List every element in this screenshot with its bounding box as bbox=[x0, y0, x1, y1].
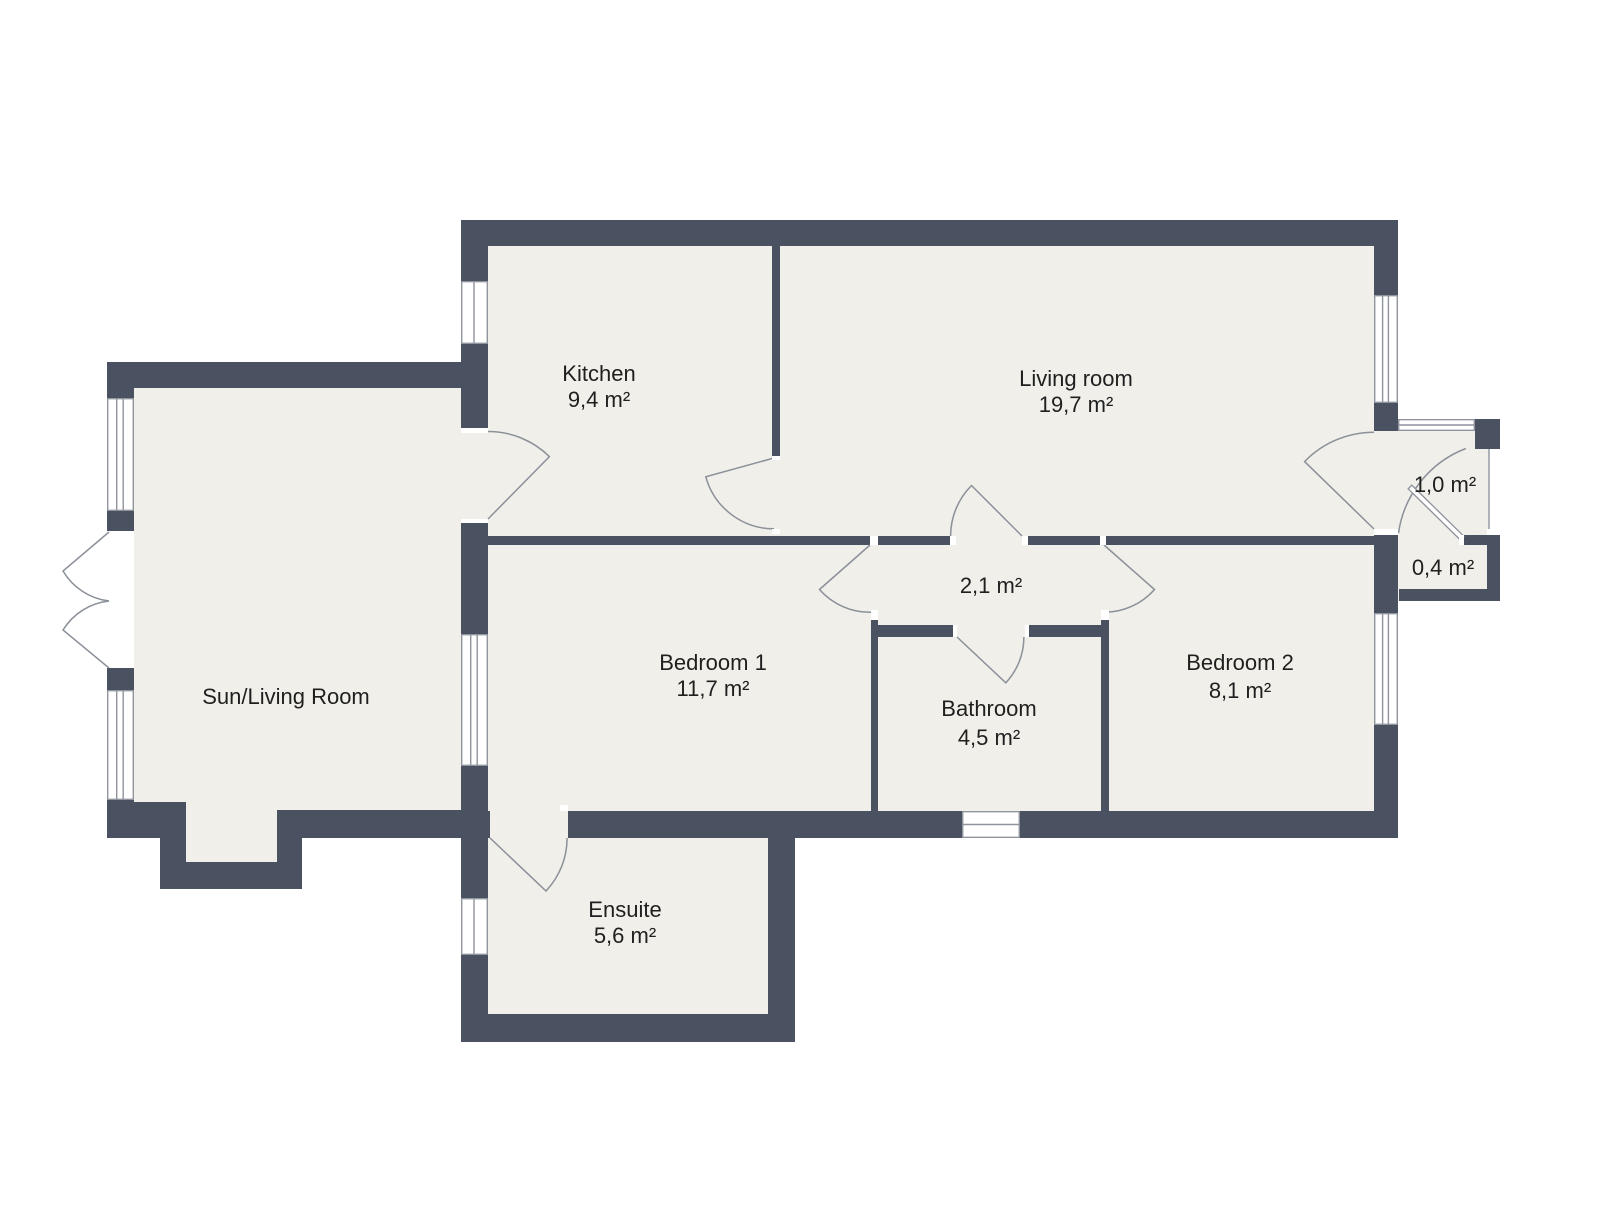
svg-text:0,4 m²: 0,4 m² bbox=[1412, 555, 1474, 580]
svg-text:19,7 m²: 19,7 m² bbox=[1039, 392, 1114, 417]
svg-text:2,1 m²: 2,1 m² bbox=[960, 573, 1022, 598]
svg-text:Ensuite: Ensuite bbox=[588, 897, 661, 922]
svg-text:5,6 m²: 5,6 m² bbox=[594, 923, 656, 948]
svg-text:9,4 m²: 9,4 m² bbox=[568, 387, 630, 412]
svg-text:Sun/Living Room: Sun/Living Room bbox=[202, 684, 370, 709]
svg-text:4,5 m²: 4,5 m² bbox=[958, 725, 1020, 750]
svg-text:1,0 m²: 1,0 m² bbox=[1414, 472, 1476, 497]
svg-text:Bathroom: Bathroom bbox=[941, 696, 1036, 721]
svg-text:Bedroom 2: Bedroom 2 bbox=[1186, 650, 1294, 675]
svg-text:8,1 m²: 8,1 m² bbox=[1209, 678, 1271, 703]
svg-text:Living room: Living room bbox=[1019, 366, 1133, 391]
svg-text:Bedroom 1: Bedroom 1 bbox=[659, 650, 767, 675]
svg-text:Kitchen: Kitchen bbox=[562, 361, 635, 386]
svg-text:11,7 m²: 11,7 m² bbox=[677, 676, 750, 701]
